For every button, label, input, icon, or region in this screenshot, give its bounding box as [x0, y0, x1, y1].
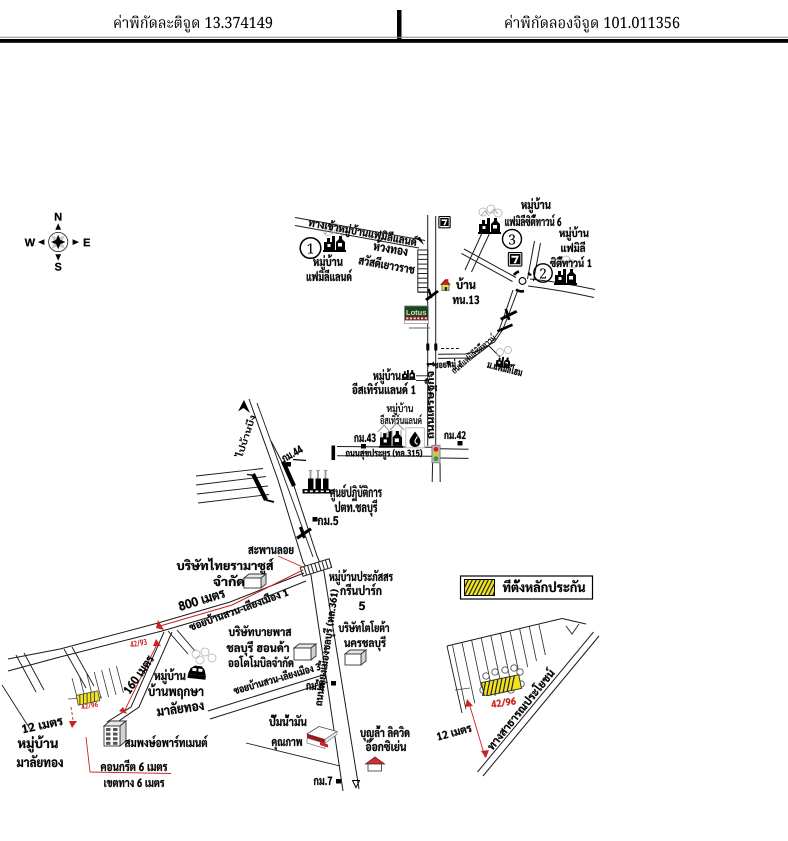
svg-text:Lotus: Lotus	[406, 308, 426, 317]
